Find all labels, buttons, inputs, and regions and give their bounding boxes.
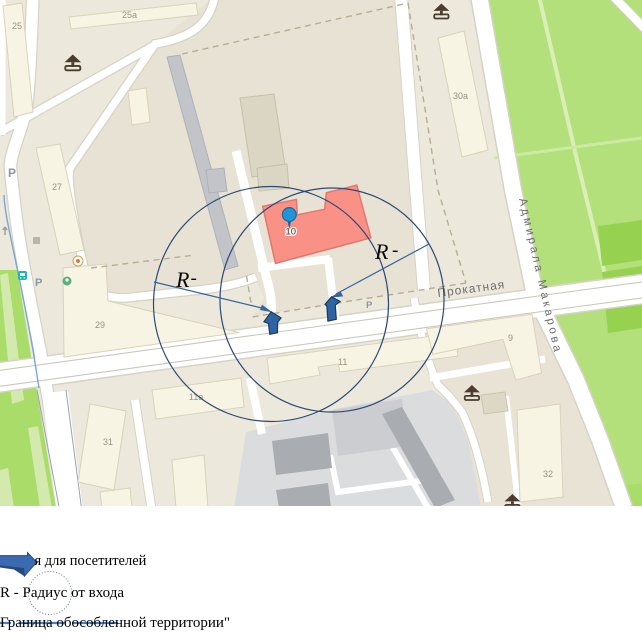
svg-text:11а: 11а [189,392,203,402]
svg-text:32: 32 [543,469,553,479]
svg-text:-: - [392,240,398,261]
svg-text:P: P [8,166,16,180]
svg-text:31: 31 [103,437,113,447]
svg-text:R: R [374,239,389,264]
svg-text:10: 10 [286,227,297,238]
svg-text:P: P [35,277,42,289]
svg-text:29: 29 [95,320,105,330]
svg-text:25а: 25а [122,10,137,20]
svg-text:-: - [191,268,197,289]
svg-text:P: P [366,300,373,311]
svg-text:9: 9 [508,333,513,343]
svg-text:25: 25 [12,21,22,31]
svg-text:R: R [175,267,190,292]
svg-text:27: 27 [52,182,62,192]
svg-text:11: 11 [338,357,347,367]
svg-text:30а: 30а [453,91,468,101]
